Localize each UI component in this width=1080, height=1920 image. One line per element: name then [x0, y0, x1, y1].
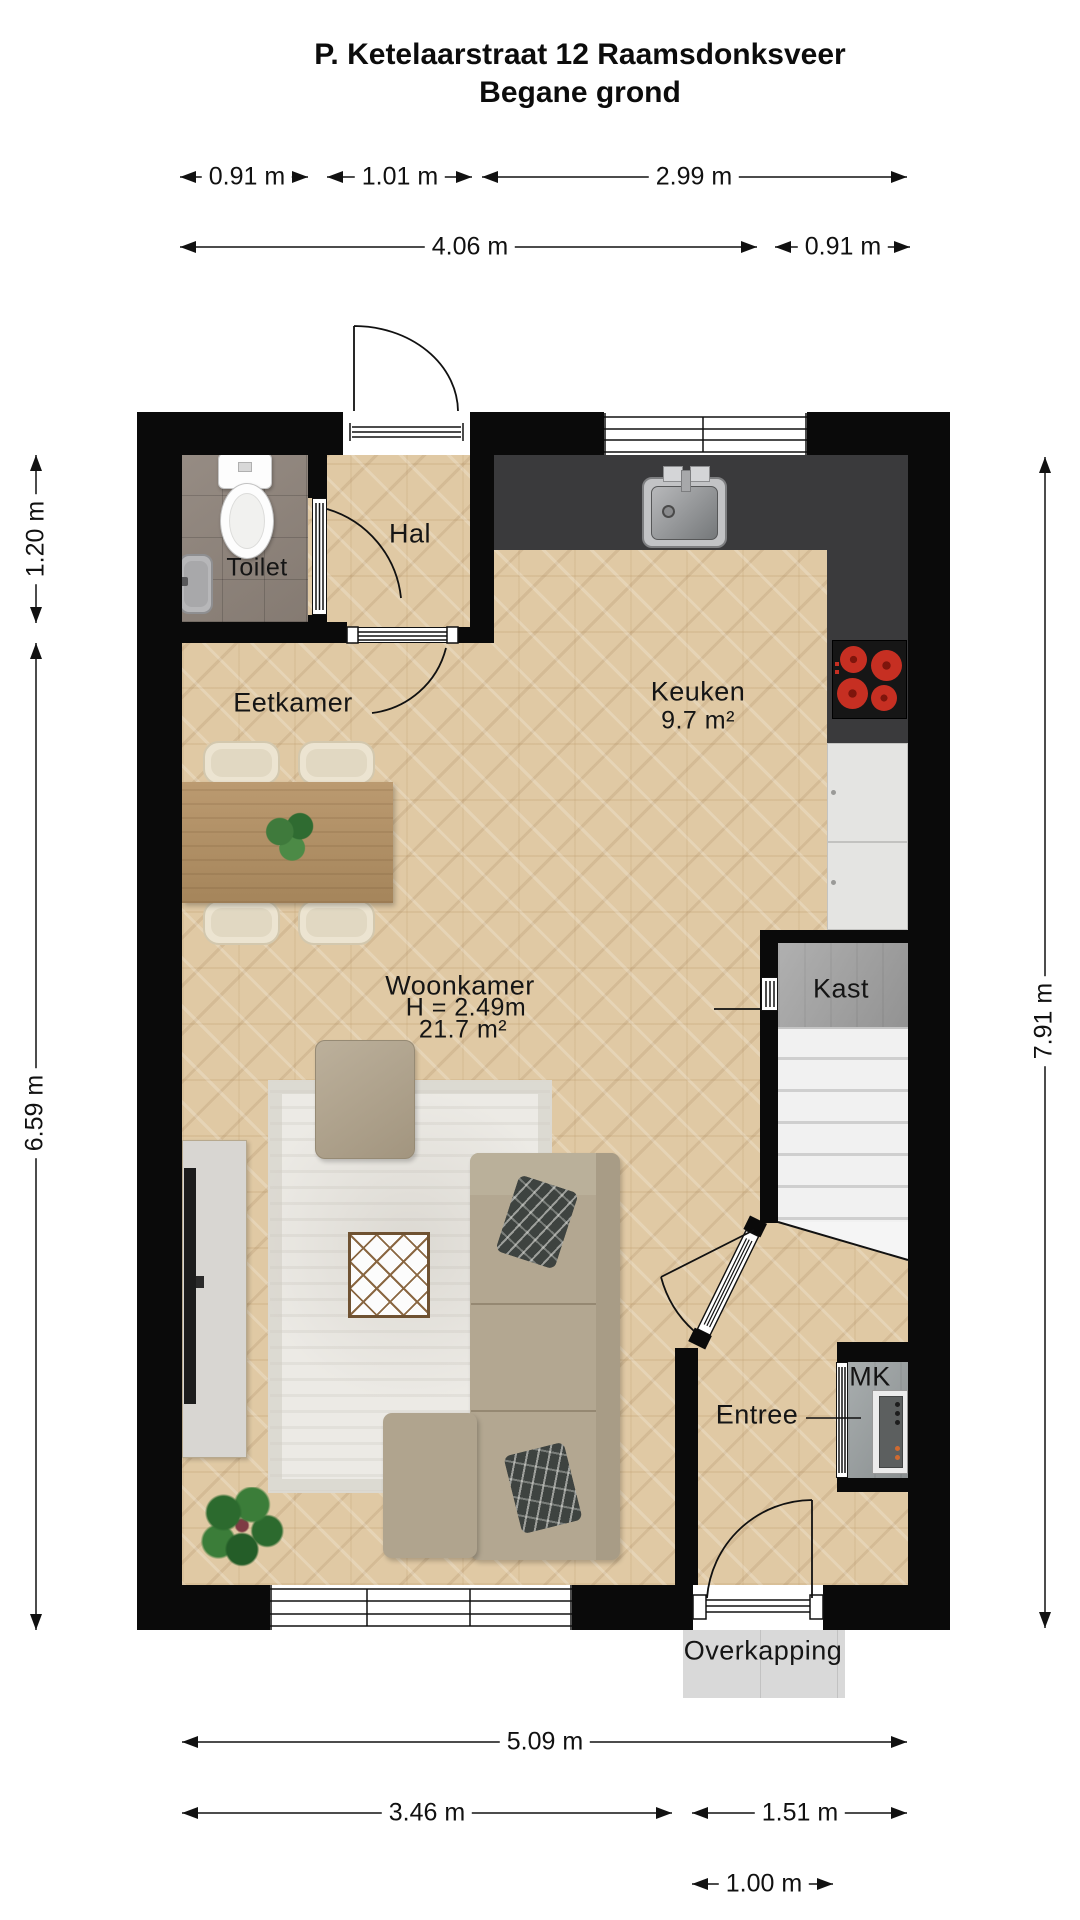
- dimension-lines: [36, 177, 1045, 1884]
- linework-overlay: [0, 0, 1080, 1920]
- label-woonkamer-area: 21.7 m²: [419, 1016, 507, 1045]
- diagonal-door: [688, 1216, 767, 1350]
- window-glazing: [270, 413, 845, 1630]
- dimension-arrowheads: [30, 171, 1051, 1890]
- hal-door-arc: [372, 648, 446, 713]
- label-kast: Kast: [813, 974, 869, 1005]
- dim-top1-toilet: 0.91 m: [202, 163, 292, 192]
- label-entree: Entree: [716, 1400, 799, 1431]
- dim-overkapping: 1.00 m: [719, 1870, 809, 1899]
- dim-bottom-left: 3.46 m: [382, 1799, 472, 1828]
- label-keuken: Keuken: [651, 677, 746, 708]
- entree-door-arc: [707, 1500, 812, 1598]
- dim-bottom-total: 5.09 m: [500, 1728, 590, 1757]
- label-mk: MK: [849, 1362, 891, 1393]
- label-hal: Hal: [389, 519, 431, 550]
- label-toilet: Toilet: [226, 554, 287, 583]
- floorplan-page: P. Ketelaarstraat 12 Raamsdonksveer Bega…: [0, 0, 1080, 1920]
- label-keuken-area: 9.7 m²: [661, 707, 735, 736]
- front-door-arc: [354, 326, 458, 411]
- dim-bottom-right: 1.51 m: [755, 1799, 845, 1828]
- dim-left-toilet: 1.20 m: [22, 494, 51, 584]
- dim-top1-hal: 1.01 m: [355, 163, 445, 192]
- dim-left-main: 6.59 m: [21, 1068, 50, 1158]
- label-eetkamer: Eetkamer: [233, 688, 353, 719]
- label-overkapping: Overkapping: [684, 1636, 843, 1667]
- dim-top2-main: 4.06 m: [425, 233, 515, 262]
- dim-top1-keuken: 2.99 m: [649, 163, 739, 192]
- dim-top2-right: 0.91 m: [798, 233, 888, 262]
- dim-right-total: 7.91 m: [1030, 976, 1059, 1066]
